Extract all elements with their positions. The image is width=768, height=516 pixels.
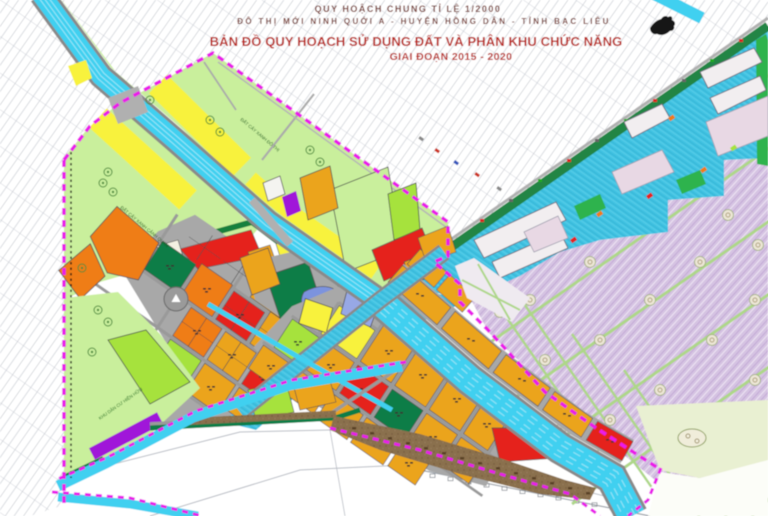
svg-text:GIAI ĐOẠN 2015 - 2020: GIAI ĐOẠN 2015 - 2020 <box>390 51 513 63</box>
svg-text:BẢN ĐỒ QUY HOẠCH SỬ DỤNG ĐẤT V: BẢN ĐỒ QUY HOẠCH SỬ DỤNG ĐẤT VÀ PHÂN KHU… <box>210 34 623 49</box>
svg-text:ĐÔ THỊ MỚI NINH QUỚI A - HUYỆN: ĐÔ THỊ MỚI NINH QUỚI A - HUYỆN HỒNG DÂN … <box>237 16 610 26</box>
svg-text:QUY HOẬCH CHUNG TỈ LỆ 1/2000: QUY HOẬCH CHUNG TỈ LỆ 1/2000 <box>315 3 502 14</box>
